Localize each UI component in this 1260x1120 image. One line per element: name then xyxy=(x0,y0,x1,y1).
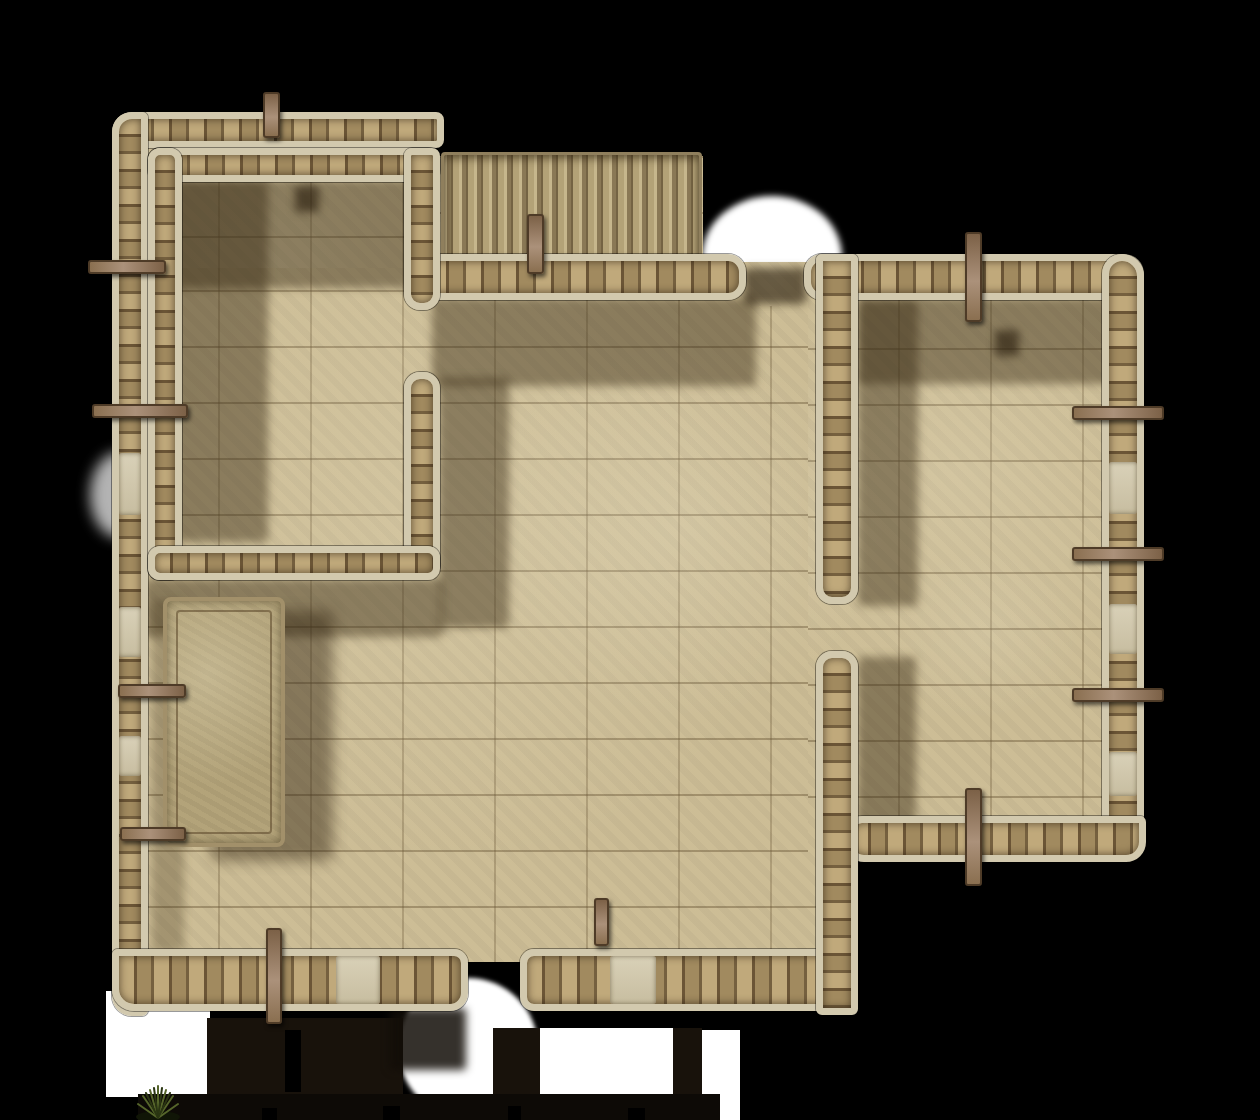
beam-peg xyxy=(594,898,609,946)
wall-divider-upper xyxy=(816,254,858,604)
beam-peg xyxy=(266,928,282,1024)
shadow-notch xyxy=(995,330,1019,356)
wall-room-a-south xyxy=(148,546,440,580)
wing-shadow xyxy=(858,300,918,606)
raised-stone-platform xyxy=(163,597,285,847)
wall-divider-lower xyxy=(816,651,858,1015)
wall-west xyxy=(112,112,148,1016)
wall-wing-south xyxy=(846,816,1146,862)
beam-peg xyxy=(965,232,982,322)
beam-peg xyxy=(1072,547,1164,561)
beam-peg xyxy=(92,404,188,418)
hall-shadow xyxy=(432,298,756,386)
beam-peg xyxy=(118,684,186,698)
east-door-slab xyxy=(1109,752,1137,796)
wall-cast-shadow xyxy=(390,1008,466,1070)
south-door-slab xyxy=(610,956,656,1004)
terrain-notch xyxy=(508,1106,521,1120)
shadow-notch xyxy=(295,186,319,212)
wall-room-a-east-lower xyxy=(404,372,440,574)
beam-peg xyxy=(527,214,544,274)
terrain-notch xyxy=(262,1108,277,1120)
west-door-slab xyxy=(119,736,141,776)
east-door-slab xyxy=(1109,604,1137,654)
west-door-slab xyxy=(119,607,141,657)
wall-south-a xyxy=(112,949,468,1011)
wall-room-a-east-upper xyxy=(404,148,440,310)
wall-room-a-north xyxy=(148,148,440,182)
east-door-slab xyxy=(1109,462,1137,514)
platform-inset-border xyxy=(176,610,272,834)
beam-peg xyxy=(1072,406,1164,420)
battlemap-canvas xyxy=(0,0,1260,1120)
beam-peg xyxy=(965,788,982,886)
terrain-notch xyxy=(383,1106,400,1120)
terrain-gap xyxy=(285,1030,301,1092)
wall-under-stairs xyxy=(424,254,746,300)
beam-peg xyxy=(1072,688,1164,702)
hall-shadow xyxy=(439,378,509,628)
room-shadow xyxy=(168,180,268,542)
wall-south-b xyxy=(520,949,854,1011)
wing-shadow xyxy=(858,657,916,825)
beam-peg xyxy=(120,827,186,841)
south-door-slab xyxy=(336,956,380,1004)
wall-room-a-west xyxy=(148,148,182,580)
beam-peg xyxy=(263,92,280,138)
terrain-notch xyxy=(628,1108,645,1120)
gap-shadow xyxy=(744,268,806,304)
grass-tuft-icon xyxy=(128,1078,188,1120)
beam-peg xyxy=(88,260,166,274)
light-patch xyxy=(890,550,1080,720)
west-door-slab xyxy=(119,453,141,515)
staircase xyxy=(441,152,702,264)
